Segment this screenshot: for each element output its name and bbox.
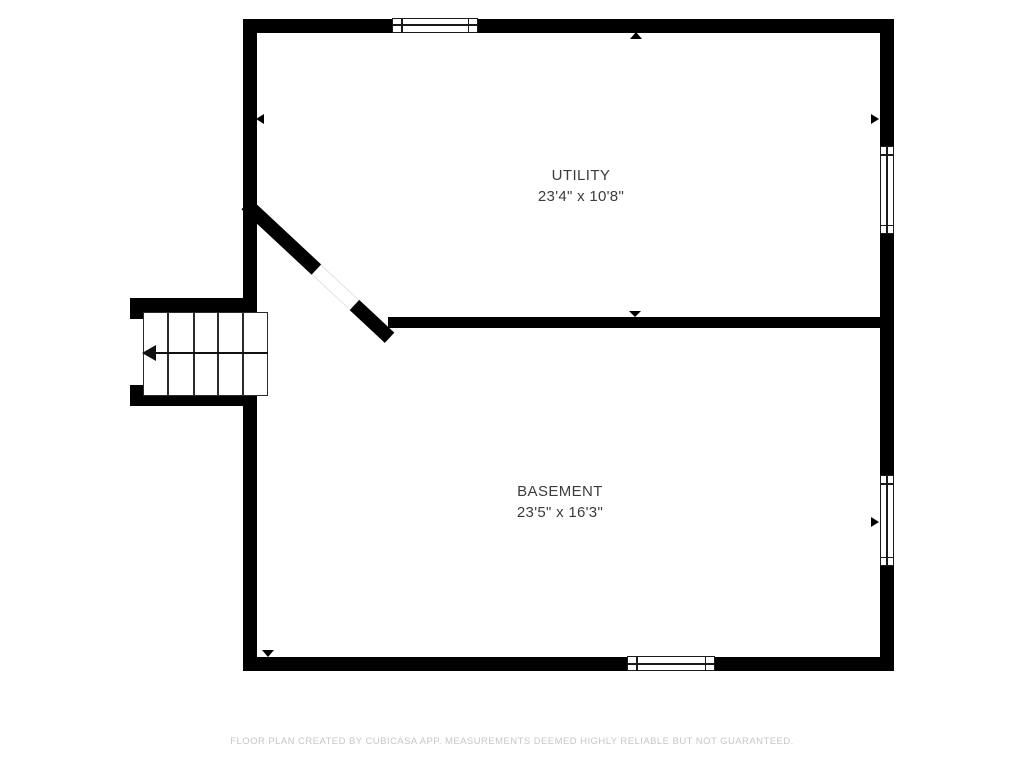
stairs-arrow-icon bbox=[142, 345, 156, 361]
basement-room-label: BASEMENT 23'5" x 16'3" bbox=[435, 482, 685, 522]
window-cap-line bbox=[881, 557, 893, 559]
wall-divider bbox=[388, 317, 880, 328]
wall-marker-right-upper-icon bbox=[871, 114, 879, 124]
wall-marker-up-icon bbox=[630, 32, 642, 39]
window-pane-line bbox=[886, 147, 888, 233]
right-wall-window-upper bbox=[880, 146, 894, 234]
right-wall-window-lower bbox=[880, 475, 894, 566]
wall-bottom bbox=[243, 657, 894, 671]
window-cap-line bbox=[881, 225, 893, 227]
window-cap-line bbox=[468, 19, 470, 32]
wall-top bbox=[243, 19, 894, 33]
wall-left-lower bbox=[243, 395, 257, 671]
stair-tread bbox=[193, 313, 195, 395]
window-cap-line bbox=[705, 657, 707, 670]
room-dimensions: 23'4" x 10'8" bbox=[456, 187, 706, 206]
room-name: UTILITY bbox=[456, 166, 706, 185]
window-cap-line bbox=[881, 154, 893, 156]
wall-marker-down-bottom-icon bbox=[262, 650, 274, 657]
window-pane-line bbox=[393, 24, 477, 26]
footer-disclaimer: FLOOR PLAN CREATED BY CUBICASA APP. MEAS… bbox=[0, 736, 1024, 747]
window-cap-line bbox=[401, 19, 403, 32]
top-wall-window bbox=[392, 18, 478, 33]
window-cap-line bbox=[636, 657, 638, 670]
room-name: BASEMENT bbox=[435, 482, 685, 501]
room-dimensions: 23'5" x 16'3" bbox=[435, 503, 685, 522]
utility-room-label: UTILITY 23'4" x 10'8" bbox=[456, 166, 706, 206]
wall-marker-down-divider-icon bbox=[629, 311, 641, 317]
stair-enclosure-wall-top bbox=[130, 298, 243, 312]
stair-tread bbox=[167, 313, 169, 395]
window-pane-line bbox=[886, 476, 888, 565]
stair-enclosure-stub-bottom bbox=[130, 385, 144, 406]
stair-tread bbox=[217, 313, 219, 395]
stairs-direction-line bbox=[152, 352, 268, 354]
window-cap-line bbox=[881, 483, 893, 485]
wall-left-upper bbox=[243, 19, 257, 313]
stair-enclosure-stub-top bbox=[130, 298, 144, 319]
wall-marker-left-icon bbox=[256, 114, 264, 124]
staircase bbox=[143, 312, 268, 396]
door-opening bbox=[312, 264, 360, 310]
wall-right bbox=[880, 19, 894, 671]
bottom-wall-window bbox=[627, 656, 715, 671]
floor-plan-canvas: UTILITY 23'4" x 10'8" BASEMENT 23'5" x 1… bbox=[0, 0, 1024, 768]
window-pane-line bbox=[628, 663, 714, 665]
wall-marker-right-lower-icon bbox=[871, 517, 879, 527]
stair-tread bbox=[242, 313, 244, 395]
